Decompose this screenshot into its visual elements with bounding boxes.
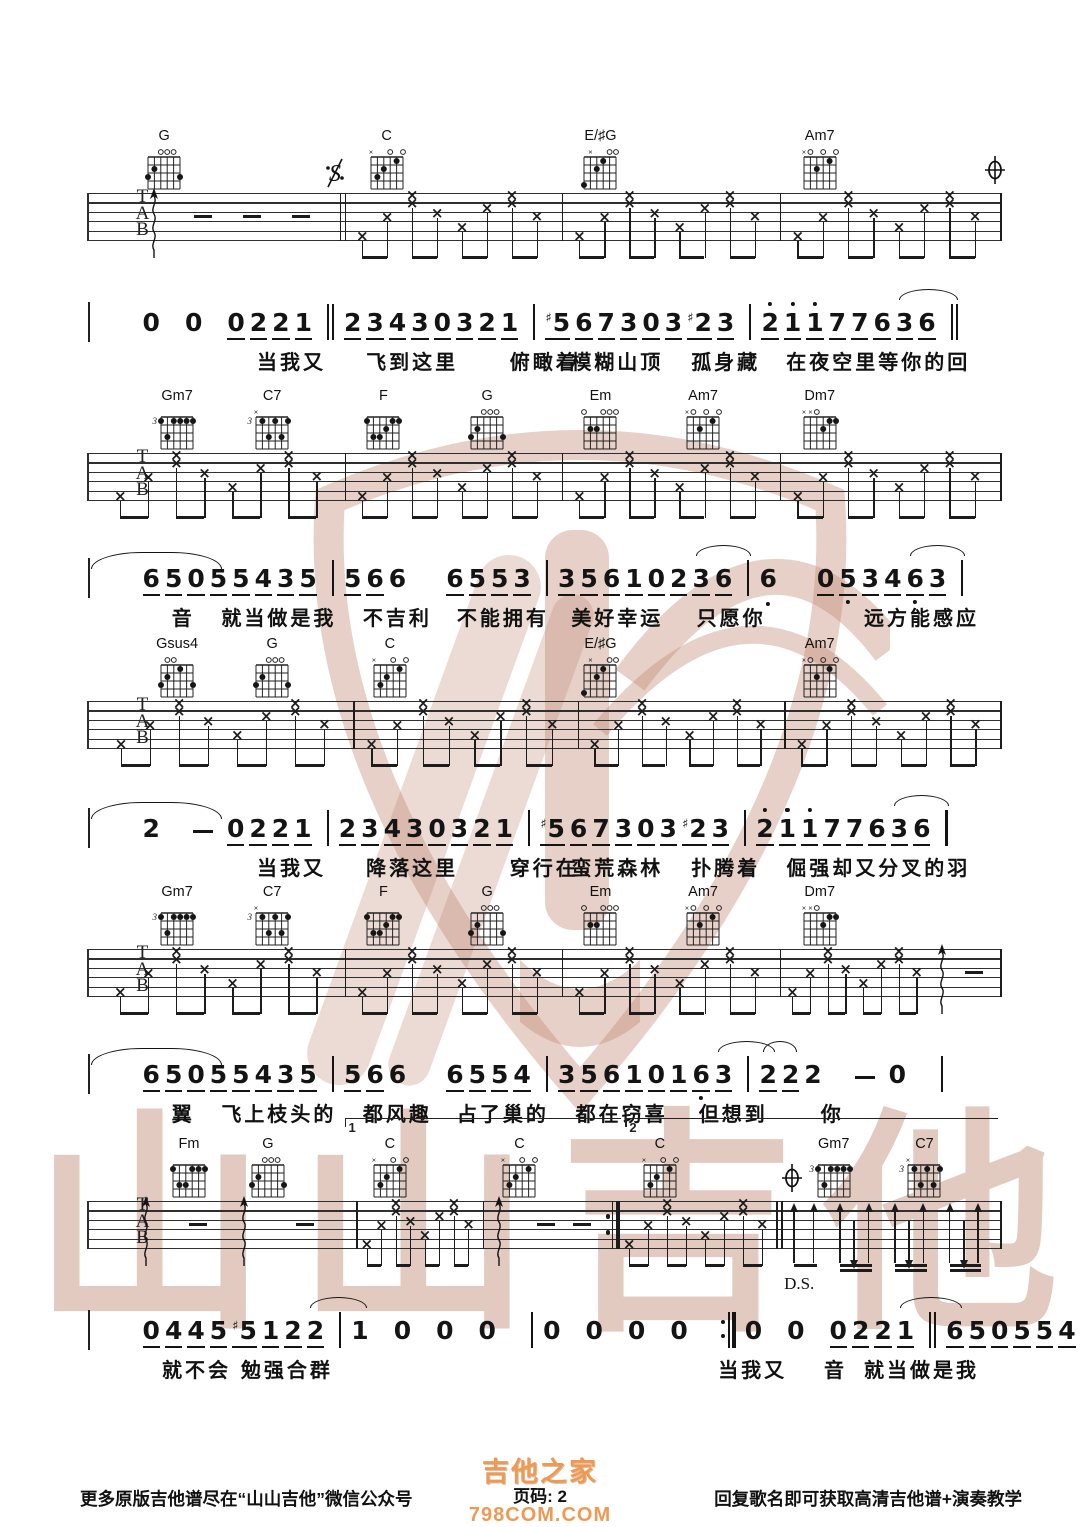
note-stem [381,1230,382,1266]
chord-grid-svg [462,403,512,453]
chord-name: E/♯G [571,128,629,143]
note-stem [412,208,413,258]
note-stem [899,492,900,518]
rest-dash [965,971,983,974]
staff-left-edge [87,1201,89,1249]
strum-arrow-up-icon [936,944,948,1021]
eighth-beam [579,256,604,259]
chord-grid: ×× [791,899,849,954]
note-digit: 0 [991,1318,1008,1348]
note-digit: 3 [929,566,946,596]
note-stem [295,716,296,766]
note-digit: ♯5 [545,310,570,340]
svg-text:3: 3 [247,912,253,922]
note-stem [232,988,233,1014]
chord-name: Gm7 [805,1136,863,1151]
strum-arrow-up-icon [946,1203,954,1263]
measure: ×××××××××× [562,193,780,283]
chord-name: C [361,1136,419,1151]
eighth-beam [423,764,449,767]
note-stem [410,1226,411,1266]
lyric-text: 当我又 [257,852,326,881]
note-digit: 0 [143,310,160,340]
chord-diagram: Gm73 [805,1136,863,1206]
note-digit: 6 [143,566,160,596]
bar-divider [749,304,751,340]
note-digit: 2 [478,310,495,340]
bar-divider [744,810,746,846]
eighth-beam [679,516,704,519]
eighth-beam [121,764,150,767]
note-digit: 1 [801,816,818,846]
note-digit: 1 [295,310,312,340]
volta-bracket: 2 [625,1118,998,1135]
note-digit: 0 [394,1318,411,1348]
note-digit: 4 [384,816,401,846]
brand-site: 798COM.COM [380,1504,700,1527]
eighth-beam [705,1264,724,1267]
note-stem [713,721,714,766]
note-stem [975,481,976,518]
lyric-text: 音 [824,1354,847,1383]
note-stem [743,1216,744,1266]
note-digit: 3 [361,816,378,846]
barline [1000,1201,1002,1249]
eighth-beam [801,764,826,767]
note-digit: 6 [946,1318,963,1348]
measure: ×××××××××× [784,701,1000,791]
note-digit: ♯5 [540,816,565,846]
note-stem [686,1226,687,1266]
note-stem [462,988,463,1014]
svg-text:×: × [589,148,593,157]
measure: ×××××××××× [353,701,578,791]
note-digit: 4 [513,1062,530,1092]
note-digit: 4 [255,566,272,596]
barline [1000,701,1002,749]
note-digit: 3 [411,310,428,340]
eighth-beam [899,256,924,259]
eighth-beam [232,1012,260,1015]
note-digit: 5 [232,566,249,596]
note-digit: 0 [648,1062,665,1092]
note-stem [848,468,849,518]
lyric-text: 就当做是我 [864,1354,979,1383]
chord-diagram: Dm7×× [791,388,849,458]
eighth-beam [295,764,324,767]
note-stem [204,478,205,518]
eighth-beam [579,516,604,519]
note-stem [873,478,874,518]
eighth-beam [901,764,926,767]
eighth-beam [512,1012,537,1015]
note-stem [737,716,738,766]
line-start-bar [88,558,90,598]
note-stem [396,1216,397,1266]
eighth-beam [899,1012,917,1015]
note-stem [449,726,450,766]
lyric-text: 倔强却又分叉的羽 [786,852,970,881]
chord-name: Am7 [791,128,849,143]
note-digit: 1 [779,816,796,846]
note-stem [823,222,824,258]
note-stem [604,222,605,258]
note-stem [654,478,655,518]
eighth-beam [526,764,552,767]
note-digit: 3 [896,310,913,340]
note-digit: 5 [1036,1318,1053,1348]
note-stem [642,716,643,766]
svg-text:3: 3 [809,1164,815,1174]
note-digit: 5 [344,566,361,596]
eighth-beam [462,1012,487,1015]
chord-grid: × [791,143,849,198]
svg-text:×: × [501,1156,505,1165]
note-digit: 5 [469,566,486,596]
strum-arrow-down-icon [960,1215,968,1267]
note-stem [266,721,267,766]
svg-text:3: 3 [899,1164,905,1174]
note-digit: 6 [603,1062,620,1092]
volta-number: 2 [629,1120,636,1135]
lyric-text: 飞到这里 [366,346,458,375]
chord-grid-svg: × [678,899,728,949]
note-digit: 6 [389,1062,406,1092]
eighth-beam [179,764,208,767]
note-digit: 1 [501,310,518,340]
lyric-text: 不吉利 [363,602,432,631]
rest-dash [296,1223,314,1226]
eighth-beam [176,516,204,519]
note-digit: 0 [227,310,244,340]
eighth-beam [362,1012,387,1015]
eighth-beam [863,1012,881,1015]
bar-divider [721,1312,737,1348]
note-digit: 0 [830,1318,847,1348]
note-stem [629,468,630,518]
note-digit: 1 [496,816,513,846]
note-stem [454,1216,455,1266]
note-digit: 4 [389,310,406,340]
note-digit: 2 [782,1062,799,1092]
note-digit: 0 [434,310,451,340]
chord-grid-svg: × [795,143,845,193]
measure [483,1201,616,1291]
note-stem [425,1240,426,1266]
svg-text:×: × [685,408,689,417]
note-digit: 3 [692,566,709,596]
note-digit: 3 [513,566,530,596]
chord-grid-svg [164,1151,214,1201]
svg-text:×: × [802,408,806,417]
chord-grid [571,899,629,954]
note-digit: 0 [143,1318,160,1348]
segno-icon: S [325,158,345,193]
chord-grid-svg: ×× [795,403,845,453]
chord-grid-svg [358,899,408,949]
note-stem [679,988,680,1014]
bar-divider [951,304,958,340]
note-digit: 6 [906,566,923,596]
measure: ×××××××××× [780,193,1000,283]
note-stem [810,978,811,1014]
eighth-beam [371,764,397,767]
strum-arrow-up-icon [919,1203,927,1263]
strum-beam [840,1264,872,1267]
bar-divider [546,1056,548,1092]
note-digit: 3 [862,566,879,596]
strum-arrow-up-icon [238,1196,250,1273]
note-digit: 6 [143,1062,160,1092]
note-digit: 0 [648,566,665,596]
note-stem [755,481,756,518]
lyric-text: 不能拥有 [457,602,549,631]
note-digit: 4 [187,1318,204,1348]
note-digit: 2 [874,1318,891,1348]
note-stem [512,208,513,258]
lyric-text: 就当做是我 [221,602,336,631]
note-stem [899,964,900,1014]
measure: ×××××××××× [578,701,784,791]
note-digit: 6 [868,816,885,846]
note-digit: 5 [1013,1318,1030,1348]
footer-promo-right: 回复歌名即可获取高清吉他谱+演奏教学 [714,1486,1022,1511]
note-digit: 7 [851,310,868,340]
note-digit: 0 [637,816,654,846]
chord-name: C7 [895,1136,953,1151]
note-stem [512,964,513,1014]
note-digit: 0 [745,1318,762,1348]
note-stem [537,977,538,1014]
note-stem [387,978,388,1014]
note-digit: 0 [586,1318,603,1348]
lyric-text: 远方能感应 [864,602,979,631]
strum-beam [895,1264,927,1267]
strum-arrow-up-icon [836,1203,844,1263]
note-stem [845,974,846,1014]
tab-system: FmGC×C×C×Gm73C73×TAB××××××××××××××××××××… [0,1136,1080,1306]
lyric-text: 只愿你 [697,602,766,631]
note-digit: 1 [784,310,801,340]
line-start-bar [88,1054,90,1094]
measure: ×××××××××× [100,453,344,543]
tab-staff: TAB×××××××××××××××××××××××××××××××××××××… [87,949,1000,996]
chord-name: C7 [243,388,301,403]
eighth-beam [512,256,537,259]
bar-divider [327,810,329,846]
measure: ×××××××××× [345,193,562,283]
note-digit: 3 [715,1062,732,1092]
note-stem [604,978,605,1014]
strum-arrow-up-icon [790,1203,798,1263]
note-stem [260,473,261,518]
rest-dash [194,215,212,218]
eighth-beam [743,1264,762,1267]
note-digit: 2 [339,816,356,846]
bar-divider [339,1312,341,1348]
eighth-beam [425,1264,440,1267]
note-digit: 2 [284,1318,301,1348]
note-digit: 2 [852,1318,869,1348]
note-digit: 6 [603,566,620,596]
coda-icon [781,1164,803,1197]
score-area: GC×E/♯G×Am7×TAB×××××××××××××××××××××××××… [0,0,1080,1527]
note-digit: 3 [451,816,468,846]
chord-name: F [354,388,412,403]
note-digit: 2 [272,816,289,846]
eighth-beam [579,1012,604,1015]
barline [1000,193,1002,241]
svg-text:×: × [372,1156,376,1165]
chord-diagram: E/♯G× [571,636,629,706]
note-digit: 0 [185,310,202,340]
note-digit: 3 [717,310,734,340]
note-digit: 0 [642,310,659,340]
tab-staff: TAB×××××××××××××××××××××××××××××××××××××… [87,701,1000,748]
note-stem [148,978,149,1014]
eighth-beam [237,764,266,767]
staff-left-edge [87,453,89,501]
note-stem [705,473,706,518]
note-stem [755,221,756,258]
lyric-text: 孤身藏 [691,346,760,375]
lyric-text: 俯瞰着 [510,346,579,375]
svg-text:×: × [254,904,258,913]
note-digit: 0 [817,566,834,596]
note-digit: 7 [846,816,863,846]
note-digit: 1 [294,816,311,846]
chord-name: Gm7 [148,388,206,403]
rest-dash [537,1223,555,1226]
lyric-text: 勉强合群 [241,1354,333,1383]
note-digit: 6 [692,1062,709,1092]
note-digit: 5 [210,1318,227,1348]
note-digit: 1 [262,1318,279,1348]
eighth-beam [629,1012,654,1015]
note-digit: 3 [615,816,632,846]
chord-grid-svg [243,1151,293,1201]
note-stem [397,730,398,766]
note-digit: 4 [1058,1318,1075,1348]
svg-text:×: × [642,1156,646,1165]
strum-arrow-up-icon [493,1196,505,1273]
chord-diagram: C× [361,636,419,706]
note-digit: 0 [187,566,204,596]
svg-text:3: 3 [152,416,158,426]
dash-note [193,830,213,833]
note-stem [387,482,388,518]
chord-name: G [458,388,516,403]
note-digit: 6 [759,566,776,596]
svg-text:×: × [589,656,593,665]
note-digit: 6 [715,566,732,596]
note-stem [604,482,605,518]
svg-text:×: × [368,148,372,157]
chord-diagram: Em [571,388,629,458]
note-stem [648,1230,649,1266]
note-digit: 6 [446,566,463,596]
note-stem [179,716,180,766]
eighth-beam [848,256,873,259]
lyric-text: 扑腾着 [691,852,760,881]
lyric-text: 模糊山顶 [571,346,663,375]
svg-text:×: × [906,1156,910,1165]
strum-arrow-down-icon [905,1215,913,1267]
note-stem [916,977,917,1014]
chord-grid-svg: × [635,1151,685,1201]
strum-arrow-up-icon [148,188,160,265]
eighth-beam [288,1012,316,1015]
note-digit: 3 [558,1062,575,1092]
line-start-bar [88,302,90,342]
measure: ×××××××××× [100,949,344,1039]
note-stem [949,468,950,518]
eighth-beam [679,256,704,259]
number-notation-line: 2022123430321♯567303♯2321177636当我又降落这里穿行… [0,806,1080,891]
note-digit: 0 [436,1318,453,1348]
eighth-beam [396,1264,411,1267]
eighth-beam [797,516,822,519]
note-stem [823,482,824,518]
chord-diagram: F [354,388,412,458]
chord-grid-svg [575,403,625,453]
note-digit: 5 [210,1062,227,1092]
strum-beam [950,1264,982,1267]
note-digit: 3 [277,566,294,596]
note-digit: 4 [165,1318,182,1348]
note-stem [863,988,864,1014]
eighth-beam [176,1012,204,1015]
note-digit: 6 [389,566,406,596]
note-digit: 5 [344,1062,361,1092]
note-stem [629,964,630,1014]
note-digit: 5 [839,566,856,596]
note-digit: 3 [366,310,383,340]
eighth-beam [412,256,437,259]
note-stem [828,964,829,1014]
staff-left-edge [87,949,89,997]
chord-grid: × [791,651,849,706]
strum-beam [895,1269,927,1272]
notes-row: 2022123430321♯567303♯2321177636 [143,806,958,846]
note-digit: 5 [299,566,316,596]
note-stem [730,468,731,518]
note-digit: 5 [580,1062,597,1092]
note-digit: 6 [913,816,930,846]
note-digit: 2 [473,816,490,846]
note-stem [437,478,438,518]
note-digit: 2 [307,1318,324,1348]
chord-grid-svg: × [575,143,625,193]
strum-beam [840,1269,872,1272]
note-digit: 3 [660,816,677,846]
note-stem [412,468,413,518]
note-stem [848,208,849,258]
chord-diagram: C73× [895,1136,953,1206]
note-stem [881,969,882,1014]
note-stem [260,969,261,1014]
eighth-beam [512,516,537,519]
bar-divider [533,304,535,340]
dash-note [855,1076,875,1079]
barline [1000,453,1002,501]
note-digit: 0 [227,816,244,846]
note-stem [629,208,630,258]
note-stem [762,1229,763,1266]
strum-arrow-up-icon [140,1196,152,1273]
note-digit: 3 [456,310,473,340]
chord-grid: 3× [895,1151,953,1206]
